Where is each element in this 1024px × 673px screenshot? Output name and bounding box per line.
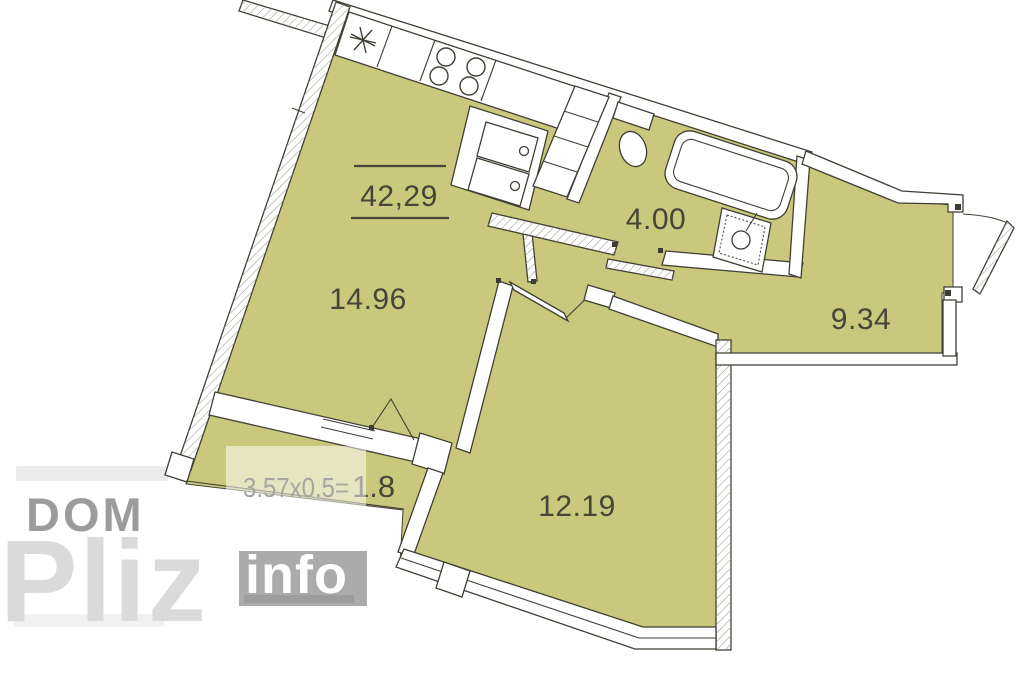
watermark-front: info [226, 446, 367, 606]
door-stop-tick [955, 204, 961, 210]
entry-lower-wall [943, 300, 956, 356]
door-stop-tick [945, 290, 951, 296]
entrance-door-hatch [973, 221, 1014, 294]
watermark-texture-bar [16, 466, 168, 481]
door-stop-tick [531, 279, 536, 284]
watermark-texture-bar [244, 595, 354, 603]
door-stop-tick [496, 278, 501, 283]
floor-plan-canvas: DOM Pliz [0, 0, 1024, 673]
bedroom-right-wall-hatch [716, 340, 731, 650]
hallway-bottom-wall [716, 353, 957, 365]
door-stop-tick [369, 425, 374, 430]
screenshot-root: DOM Pliz [0, 0, 1024, 673]
door-stop-tick [612, 242, 617, 247]
entrance-door-swing [963, 214, 1011, 225]
living-kitchen-area-label: 14.96 [329, 283, 407, 316]
watermark-back: DOM Pliz [0, 466, 208, 646]
watermark-pliz-text: Pliz [0, 516, 208, 646]
hallway-area-label: 9.34 [831, 303, 891, 336]
door-stop-tick [658, 248, 663, 253]
bedroom-area-label: 12.19 [538, 490, 616, 523]
bathroom-area-label: 4.00 [626, 203, 686, 236]
total-area-label: 42,29 [360, 180, 438, 213]
